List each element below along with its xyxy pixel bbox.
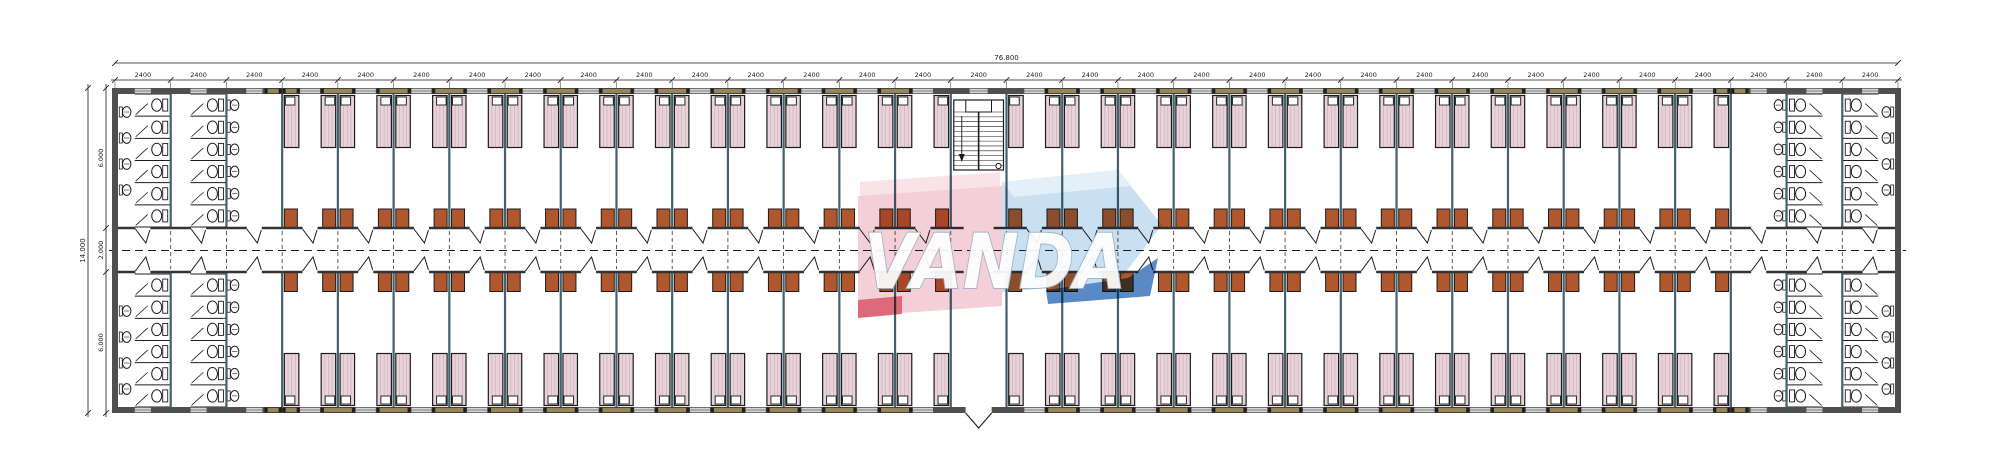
toilet-stall-column <box>190 274 226 407</box>
window-lintel <box>1547 408 1581 413</box>
washbasin-mount <box>227 347 230 357</box>
window-jamb <box>1713 408 1716 413</box>
toilet-icon <box>1796 188 1806 200</box>
washbasin-column <box>1882 306 1894 395</box>
window-jamb <box>878 89 881 94</box>
dim-label-left-segment: 6.000 <box>97 333 105 352</box>
window-glass <box>634 89 654 93</box>
window-jamb <box>463 89 466 94</box>
entrance-door-swing <box>966 413 992 428</box>
wardrobe <box>1493 273 1506 292</box>
washbasin-column <box>119 306 131 395</box>
toilet-tank <box>1845 166 1850 178</box>
door-swing <box>1305 229 1320 243</box>
window-glass <box>135 408 151 412</box>
window-jamb <box>575 408 578 413</box>
window-jamb <box>1411 408 1414 413</box>
window-lintel <box>432 408 466 413</box>
window-lintel <box>321 408 355 413</box>
door-swing <box>303 229 318 243</box>
toilet-tank <box>163 188 168 200</box>
window-jamb <box>1522 408 1525 413</box>
door-swing <box>1361 229 1376 243</box>
window-lintel <box>767 408 801 413</box>
wardrobe <box>1677 273 1690 292</box>
pillow <box>437 97 447 105</box>
toilet-tank <box>218 121 223 133</box>
toilet-icon <box>207 165 217 177</box>
toilet-tank <box>1790 323 1795 335</box>
door-swing <box>1250 229 1265 243</box>
window-lintel <box>1491 89 1525 94</box>
toilet-icon <box>1796 301 1806 313</box>
window-jamb <box>1157 89 1160 94</box>
pillow <box>1217 396 1227 404</box>
exterior-wall-right <box>1895 88 1901 413</box>
wardrobe <box>768 209 781 228</box>
toilet-icon <box>152 368 162 380</box>
washbasin-mount <box>119 185 122 195</box>
toilet-tank <box>163 210 168 222</box>
door-swing <box>135 229 150 243</box>
stall-door-swing <box>1865 394 1877 405</box>
washbasin-mount <box>119 159 122 169</box>
toilet-icon <box>1796 121 1806 133</box>
window-lintel <box>1491 408 1525 413</box>
wardrobe <box>340 273 353 292</box>
pillow <box>1233 396 1243 404</box>
wardrobe <box>1381 273 1394 292</box>
window-jamb <box>1076 408 1079 413</box>
pillow <box>715 396 725 404</box>
door-swing <box>414 257 429 271</box>
wardrobe <box>1326 209 1339 228</box>
stall-door-swing <box>1810 350 1822 361</box>
pillow <box>715 97 725 105</box>
window-glass <box>1359 408 1379 412</box>
window-jamb <box>822 89 825 94</box>
window-glass <box>1470 89 1490 93</box>
wardrobe <box>1214 209 1227 228</box>
pillow <box>1105 396 1115 404</box>
door-swing <box>1528 257 1543 271</box>
pillow <box>827 396 837 404</box>
pillow <box>1678 396 1688 404</box>
wardrobe <box>1326 273 1339 292</box>
toilet-icon <box>152 165 162 177</box>
wardrobe <box>768 273 781 292</box>
dim-label-bay: 2400 <box>692 71 709 79</box>
window-jamb <box>1324 89 1327 94</box>
window-jamb <box>321 408 324 413</box>
dim-label-bay: 2400 <box>357 71 374 79</box>
window-jamb <box>1268 89 1271 94</box>
wardrobe <box>842 209 855 228</box>
door-swing <box>804 257 819 271</box>
toilet-tank <box>1845 346 1850 358</box>
toilet-tank <box>1790 143 1795 155</box>
wardrobe <box>434 209 447 228</box>
pillow <box>620 97 630 105</box>
wardrobe <box>1622 273 1635 292</box>
dim-label-bay: 2400 <box>1416 71 1433 79</box>
toilet-icon <box>152 188 162 200</box>
pillow <box>731 396 741 404</box>
pillow <box>1065 97 1075 105</box>
door-swing <box>1640 257 1655 271</box>
stall-door-swing <box>191 192 203 203</box>
window-jamb <box>711 89 714 94</box>
washbasin-column <box>1774 280 1786 402</box>
wardrobe <box>619 209 632 228</box>
toilet-icon <box>1851 345 1861 357</box>
window-glass <box>579 408 599 412</box>
window-glass <box>1303 89 1323 93</box>
pillow <box>843 97 853 105</box>
dim-label-bay: 2400 <box>636 71 653 79</box>
wardrobe <box>490 209 503 228</box>
wardrobe <box>674 273 687 292</box>
toilet-tank <box>218 323 223 335</box>
toilet-icon <box>152 323 162 335</box>
window-lintel <box>1268 89 1302 94</box>
dimension-total-top: 76.800 <box>112 54 1901 66</box>
wardrobe <box>1510 273 1523 292</box>
window-glass <box>1136 408 1156 412</box>
door-swing <box>1305 257 1320 271</box>
window-glass <box>246 408 262 412</box>
window-jamb <box>1299 408 1302 413</box>
entrance-opening <box>966 407 992 415</box>
wardrobe <box>674 209 687 228</box>
window-glass <box>1806 89 1822 93</box>
window-jamb <box>1522 89 1525 94</box>
washbasin-mount <box>1891 107 1894 117</box>
wardrobe <box>452 273 465 292</box>
toilet-tank <box>1790 279 1795 291</box>
washbasin-mount <box>1891 384 1894 394</box>
pillow <box>843 396 853 404</box>
window-glass <box>970 89 988 93</box>
window-jamb <box>1466 89 1469 94</box>
toilet-icon <box>1796 323 1806 335</box>
wardrobe <box>730 209 743 228</box>
toilet-tank <box>1845 143 1850 155</box>
pillow <box>492 97 502 105</box>
toilet-stall-column <box>1787 274 1823 407</box>
pillow <box>381 396 391 404</box>
window-jamb <box>599 89 602 94</box>
window-jamb <box>265 89 268 94</box>
window-jamb <box>432 89 435 94</box>
wardrobe <box>1270 273 1283 292</box>
pillow <box>620 396 630 404</box>
dim-label-bay: 2400 <box>1249 71 1266 79</box>
toilet-icon <box>1851 301 1861 313</box>
pillow <box>508 396 518 404</box>
toilet-stall-column <box>1787 94 1823 227</box>
window-lintel <box>488 89 522 94</box>
wardrobe <box>824 273 837 292</box>
window-glass <box>1526 408 1546 412</box>
pillow <box>1455 396 1465 404</box>
toilet-stall-column <box>135 94 171 227</box>
wardrobe <box>323 273 336 292</box>
wardrobe <box>563 209 576 228</box>
dim-label-bay: 2400 <box>413 71 430 79</box>
toilet-tank <box>218 143 223 155</box>
window-jamb <box>1268 408 1271 413</box>
wardrobe <box>1214 273 1227 292</box>
pillow <box>437 396 447 404</box>
wardrobe <box>1158 273 1171 292</box>
window-jamb <box>909 89 912 94</box>
window-lintel <box>711 408 745 413</box>
door-swing <box>247 229 262 243</box>
door-swing <box>247 257 262 271</box>
stall-door-swing <box>136 192 148 203</box>
wardrobe <box>842 273 855 292</box>
floor-plan-canvas: 2400240024002400240024002400240024002400… <box>0 0 2000 474</box>
pillow <box>1010 97 1020 105</box>
window-glass <box>857 89 877 93</box>
toilet-icon <box>1851 188 1861 200</box>
window-jamb <box>742 89 745 94</box>
stall-door-swing <box>136 148 148 159</box>
toilet-tank <box>1845 301 1850 313</box>
window-glass <box>746 89 766 93</box>
window-jamb <box>1132 408 1135 413</box>
window-glass <box>1303 408 1323 412</box>
pillow <box>1551 396 1561 404</box>
door-swing <box>470 229 485 243</box>
wardrobe <box>378 209 391 228</box>
dim-label-total-width: 76.800 <box>994 54 1019 62</box>
window-lintel <box>1602 89 1636 94</box>
door-swing <box>1584 257 1599 271</box>
dimension-total-left: 14.000 <box>79 84 91 417</box>
toilet-tank <box>218 279 223 291</box>
window-glass <box>690 89 710 93</box>
door-swing <box>1751 229 1766 243</box>
toilet-icon <box>1851 279 1861 291</box>
window-lintel <box>1045 89 1079 94</box>
washbasin-mount <box>1783 324 1786 334</box>
window-glass <box>1414 89 1434 93</box>
dim-label-bay: 2400 <box>747 71 764 79</box>
window-glass <box>1024 89 1044 93</box>
exterior-wall-left <box>112 88 118 413</box>
window-glass <box>1080 408 1100 412</box>
window-jamb <box>575 89 578 94</box>
window-jamb <box>1689 408 1692 413</box>
washbasin-column <box>227 280 239 402</box>
toilet-tank <box>163 323 168 335</box>
wardrobe <box>1232 209 1245 228</box>
window-jamb <box>1491 89 1494 94</box>
dim-label-bay: 2400 <box>302 71 319 79</box>
toilet-icon <box>1851 99 1861 111</box>
window-lintel <box>1658 408 1692 413</box>
toilet-tank <box>163 166 168 178</box>
washbasin-mount <box>119 358 122 368</box>
wardrobe <box>786 273 799 292</box>
pillow <box>1551 97 1561 105</box>
door-swing <box>470 257 485 271</box>
door-swing <box>1863 257 1878 271</box>
window-jamb <box>711 408 714 413</box>
pillow <box>564 97 574 105</box>
dim-label-bay: 2400 <box>1862 71 1879 79</box>
dim-label-bay: 2400 <box>859 71 876 79</box>
washbasin-mount <box>227 280 230 290</box>
stall-door-swing <box>1810 372 1822 383</box>
toilet-icon <box>207 99 217 111</box>
toilet-icon <box>1851 368 1861 380</box>
pillow <box>341 396 351 404</box>
wardrobe <box>1381 209 1394 228</box>
window-glass <box>191 89 207 93</box>
pillow <box>1718 396 1728 404</box>
stall-door-swing <box>1865 214 1877 225</box>
door-swing <box>637 257 652 271</box>
window-jamb <box>1602 408 1605 413</box>
washbasin-mount <box>119 107 122 117</box>
window-jamb <box>279 408 282 413</box>
pillow <box>1272 396 1282 404</box>
washbasin-mount <box>119 332 122 342</box>
stall-door-swing <box>136 350 148 361</box>
pillow <box>787 97 797 105</box>
toilet-icon <box>1796 165 1806 177</box>
pillow <box>1161 396 1171 404</box>
window-glass <box>1751 89 1767 93</box>
pillow <box>453 97 463 105</box>
washbasin-mount <box>1783 100 1786 110</box>
window-jamb <box>1045 408 1048 413</box>
toilet-icon <box>207 368 217 380</box>
pillow <box>1567 396 1577 404</box>
pillow <box>1161 97 1171 105</box>
toilet-tank <box>1845 390 1850 402</box>
window-jamb <box>767 89 770 94</box>
wardrobe <box>284 273 297 292</box>
window-jamb <box>630 408 633 413</box>
pillow <box>675 396 685 404</box>
door-swing <box>1695 257 1710 271</box>
window-jamb <box>1727 89 1730 94</box>
toilet-icon <box>1851 390 1861 402</box>
window-lintel <box>432 89 466 94</box>
window-jamb <box>1299 89 1302 94</box>
washbasin-mount <box>227 324 230 334</box>
toilet-stall-column <box>135 274 171 407</box>
dim-label-bay: 2400 <box>1138 71 1155 79</box>
window-jamb <box>1745 89 1748 94</box>
dim-label-left-segment: 2.000 <box>97 241 105 260</box>
washbasin-mount <box>1783 211 1786 221</box>
toilet-icon <box>1796 143 1806 155</box>
wardrobe <box>507 273 520 292</box>
window-jamb <box>1547 408 1550 413</box>
stall-door-swing <box>1865 284 1877 295</box>
pillow <box>397 396 407 404</box>
window-glass <box>801 89 821 93</box>
toilet-tank <box>218 166 223 178</box>
window-glass <box>1024 408 1044 412</box>
window-jamb <box>1731 89 1734 94</box>
window-jamb <box>279 89 282 94</box>
washbasin-mount <box>1783 167 1786 177</box>
wardrobe <box>786 209 799 228</box>
door-swing <box>804 229 819 243</box>
window-jamb <box>853 408 856 413</box>
pillow <box>604 97 614 105</box>
wardrobe <box>434 273 447 292</box>
wardrobe <box>1622 209 1635 228</box>
toilet-tank <box>1845 99 1850 111</box>
wardrobe <box>546 209 559 228</box>
dim-label-bay: 2400 <box>970 71 987 79</box>
wardrobe <box>284 209 297 228</box>
pillow <box>898 97 908 105</box>
pillow <box>1511 396 1521 404</box>
window-glass <box>690 408 710 412</box>
toilet-tank <box>1790 368 1795 380</box>
window-lintel <box>1602 408 1636 413</box>
window-glass <box>579 89 599 93</box>
window-lintel <box>488 408 522 413</box>
toilet-stall-column <box>1842 274 1878 407</box>
window-glass <box>523 408 543 412</box>
window-glass <box>1192 408 1212 412</box>
window-glass <box>356 408 376 412</box>
pillow <box>604 396 614 404</box>
window-jamb <box>1188 408 1191 413</box>
door-swing <box>303 257 318 271</box>
stall-door-swing <box>1810 394 1822 405</box>
window-lintel <box>1045 408 1079 413</box>
window-jamb <box>1466 408 1469 413</box>
window-jamb <box>1727 408 1730 413</box>
wardrobe <box>657 273 670 292</box>
pillow <box>1623 97 1633 105</box>
window-jamb <box>1212 408 1215 413</box>
door-swing <box>1584 229 1599 243</box>
door-swing <box>1473 229 1488 243</box>
wardrobe <box>1604 273 1617 292</box>
wardrobe <box>490 273 503 292</box>
window-glass <box>246 89 262 93</box>
window-jamb <box>822 408 825 413</box>
door-swing <box>525 257 540 271</box>
washbasin-column <box>119 107 131 196</box>
toilet-tank <box>218 99 223 111</box>
window-jamb <box>1658 408 1661 413</box>
window-lintel <box>1324 408 1358 413</box>
toilet-tank <box>163 143 168 155</box>
pillow <box>1400 396 1410 404</box>
watermark-logo: VANDA <box>858 170 1162 318</box>
window-glass <box>1582 89 1602 93</box>
pillow <box>1662 97 1672 105</box>
washbasin-mount <box>1783 391 1786 401</box>
window-lintel <box>822 89 856 94</box>
dim-label-bay: 2400 <box>246 71 263 79</box>
window-jamb <box>1689 89 1692 94</box>
pillow <box>1495 97 1505 105</box>
window-lintel <box>544 89 578 94</box>
